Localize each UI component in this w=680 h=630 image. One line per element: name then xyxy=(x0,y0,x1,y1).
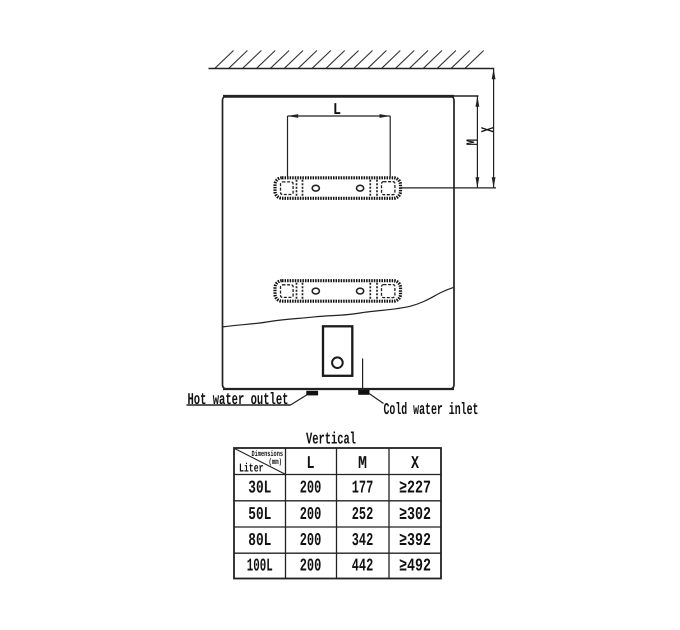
svg-text:L: L xyxy=(333,100,341,119)
svg-text:≥302: ≥302 xyxy=(399,505,431,525)
svg-text:100L: 100L xyxy=(247,557,273,577)
svg-text:Vertical: Vertical xyxy=(306,430,356,449)
svg-text:200: 200 xyxy=(300,505,322,525)
svg-text:M: M xyxy=(464,139,482,145)
svg-text:30L: 30L xyxy=(248,479,271,499)
svg-text:X: X xyxy=(478,126,499,132)
svg-text:≥227: ≥227 xyxy=(399,479,431,499)
svg-text:442: 442 xyxy=(352,557,374,577)
svg-text:200: 200 xyxy=(300,531,322,551)
svg-text:L: L xyxy=(307,454,315,474)
svg-text:342: 342 xyxy=(352,531,374,551)
svg-text:(mm): (mm) xyxy=(269,458,283,467)
svg-text:Liter: Liter xyxy=(239,462,264,476)
svg-text:Cold water inlet: Cold water inlet xyxy=(384,400,479,419)
svg-text:≥492: ≥492 xyxy=(399,557,431,577)
svg-text:X: X xyxy=(411,454,419,474)
svg-text:200: 200 xyxy=(300,479,322,499)
svg-text:50L: 50L xyxy=(248,505,271,525)
svg-text:177: 177 xyxy=(352,479,374,499)
svg-text:Hot water outlet: Hot water outlet xyxy=(188,390,289,409)
svg-text:80L: 80L xyxy=(248,531,271,551)
svg-text:252: 252 xyxy=(352,505,374,525)
svg-text:200: 200 xyxy=(300,557,322,577)
svg-text:≥392: ≥392 xyxy=(399,531,431,551)
svg-text:M: M xyxy=(358,454,367,474)
